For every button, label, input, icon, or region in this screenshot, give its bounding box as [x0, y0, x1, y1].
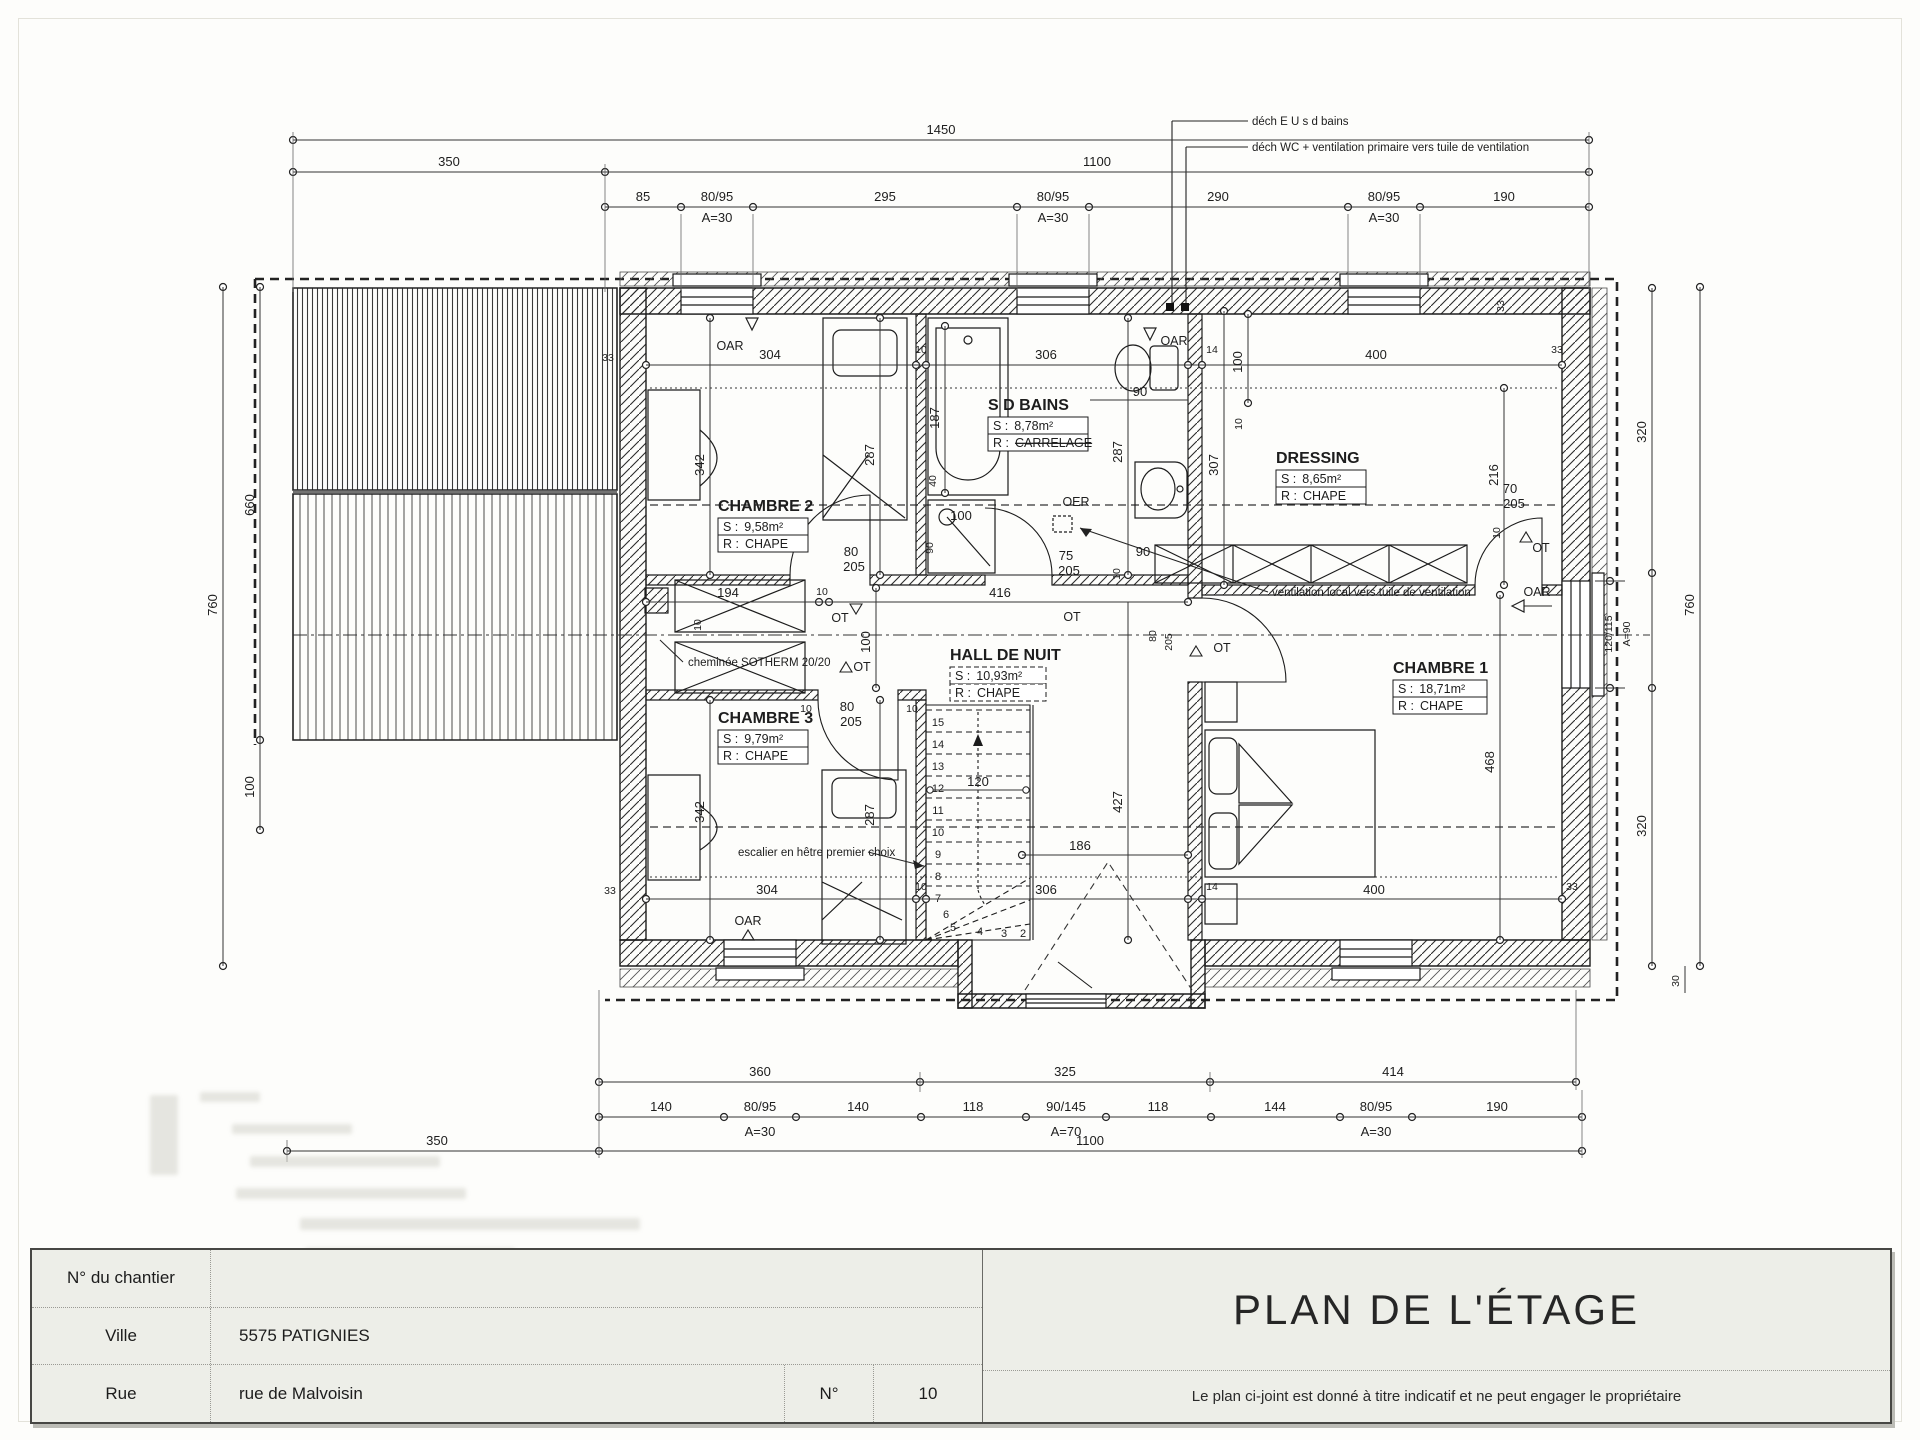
bed-ch1	[1205, 730, 1375, 877]
plan-title: PLAN DE L'ÉTAGE	[983, 1250, 1890, 1371]
dim: 10	[1491, 527, 1503, 539]
dim: 295	[874, 189, 896, 204]
dim: 10	[1233, 418, 1245, 430]
room-dressing: DRESSING S :8,65m² R :CHAPE	[1276, 450, 1366, 504]
dim: 205	[1503, 496, 1525, 511]
dim: 350	[426, 1133, 448, 1148]
dim: 80/95	[744, 1099, 777, 1114]
oar-right: OAR	[1512, 585, 1552, 612]
title-row-ville: Ville 5575 PATIGNIES	[32, 1308, 982, 1366]
dim: 187	[927, 407, 942, 429]
outer-walls	[620, 288, 1590, 1008]
dim: 10	[692, 619, 704, 631]
chantier-label: N° du chantier	[32, 1250, 211, 1307]
annotation-dech-eu: déch E U s d bains	[1252, 116, 1349, 128]
dim: 325	[1054, 1064, 1076, 1079]
dim: 100	[1230, 351, 1245, 373]
svg-text:OER: OER	[1062, 495, 1089, 509]
dim: A=30	[1361, 1124, 1392, 1139]
dim: A=30	[745, 1124, 776, 1139]
door-ch3	[818, 700, 898, 780]
svg-text:OT: OT	[1532, 541, 1550, 555]
dim: 10	[816, 586, 828, 598]
step-label: 3	[1001, 928, 1007, 940]
room-hall: HALL DE NUIT S :10,93m² R :CHAPE	[950, 647, 1061, 701]
ot-hall-west: OT	[831, 604, 862, 625]
step-label: 5	[950, 922, 956, 934]
dim: 90/145	[1046, 1099, 1086, 1114]
step-label: 10	[932, 827, 944, 839]
window-bottom-ch1	[1332, 940, 1420, 980]
dim: 427	[1110, 791, 1125, 813]
annotation-cheminee: cheminée SOTHERM 20/20	[688, 657, 831, 669]
step-label: 11	[932, 805, 943, 817]
window-top-dressing	[1340, 274, 1428, 314]
window-top-sdb	[1009, 274, 1097, 314]
dim: 400	[1363, 882, 1385, 897]
drawing-sheet: 15 14 13 12 11 10 9 8 7 6 5 4 3 2 120 CH…	[0, 0, 1920, 1440]
dim: 14	[1206, 344, 1218, 356]
ville-label: Ville	[32, 1308, 211, 1365]
svg-text:R :CHAPE: R :CHAPE	[955, 686, 1020, 700]
svg-text:S D BAINS: S D BAINS	[988, 397, 1069, 414]
title-row-rue: Rue rue de Malvoisin N° 10	[32, 1365, 982, 1422]
dim: 205	[1163, 633, 1175, 651]
dim-stair-width: 120	[967, 774, 989, 789]
dim: 205	[840, 714, 862, 729]
svg-text:S :9,58m²: S :9,58m²	[723, 520, 783, 534]
dim: A=30	[1038, 210, 1069, 225]
dim: 10	[915, 881, 927, 893]
svg-text:S :18,71m²: S :18,71m²	[1398, 682, 1465, 696]
dim: 190	[1493, 189, 1515, 204]
dim: 287	[862, 444, 877, 466]
dim: 760	[205, 594, 220, 616]
svg-text:DRESSING: DRESSING	[1276, 450, 1360, 467]
dim: 33	[604, 885, 616, 897]
dim: 194	[717, 585, 739, 600]
door-ch1	[1202, 598, 1286, 682]
ville-value: 5575 PATIGNIES	[211, 1326, 982, 1346]
dim: 80/95	[701, 189, 734, 204]
oar-bottom-left: OAR	[734, 914, 761, 940]
dim: 14	[1206, 881, 1218, 893]
dim: 140	[847, 1099, 869, 1114]
room-ch2: CHAMBRE 2 S :9,58m² R :CHAPE	[718, 498, 813, 552]
dim: 80/95	[1360, 1099, 1393, 1114]
dim: 306	[1035, 882, 1057, 897]
dim: 140	[650, 1099, 672, 1114]
dim: 186	[1069, 838, 1091, 853]
numero-label: N°	[784, 1365, 873, 1422]
dim: 33	[1551, 344, 1563, 356]
dim: 100	[950, 508, 972, 523]
dim: 205	[843, 559, 865, 574]
svg-text:CHAMBRE 1: CHAMBRE 1	[1393, 660, 1488, 677]
dim: 70	[1503, 481, 1517, 496]
dim: 1100	[1083, 154, 1111, 169]
door-swings	[790, 495, 1542, 988]
dim: 414	[1382, 1064, 1404, 1079]
dim: 468	[1482, 751, 1497, 773]
dim: 307	[1206, 454, 1221, 476]
step-label: 13	[932, 761, 944, 773]
step-label: 2	[1020, 928, 1026, 940]
dim: 304	[756, 882, 778, 897]
room-ch1: CHAMBRE 1 S :18,71m² R :CHAPE	[1393, 660, 1488, 714]
dim: 120/115	[1603, 615, 1615, 652]
dim: 100	[858, 631, 873, 653]
dim: 304	[759, 347, 781, 362]
svg-text:OT: OT	[853, 660, 871, 674]
title-block-right: PLAN DE L'ÉTAGE Le plan ci-joint est don…	[983, 1250, 1890, 1422]
dim: 90	[1136, 544, 1150, 559]
step-label: 4	[977, 926, 983, 938]
dim: 90	[1133, 384, 1147, 399]
dim: 30	[1670, 975, 1682, 987]
room-sdb: S D BAINS S :8,78m² R :CARRELAGE	[988, 397, 1092, 451]
dim: 144	[1264, 1099, 1286, 1114]
dim: 10	[800, 703, 812, 715]
dim: 400	[1365, 347, 1387, 362]
window-bottom-ch3	[716, 940, 804, 980]
ot-ch1: OT	[1190, 641, 1231, 656]
step-label: 6	[943, 909, 949, 921]
svg-text:OT: OT	[1213, 641, 1231, 655]
dim: 205	[1058, 563, 1080, 578]
dim: A=30	[1369, 210, 1400, 225]
dim: 190	[1486, 1099, 1508, 1114]
plan-disclaimer: Le plan ci-joint est donné à titre indic…	[983, 1371, 1890, 1422]
terrace	[293, 288, 617, 740]
dim: A=90	[1621, 621, 1633, 646]
dim: 100	[242, 776, 257, 798]
title-block: N° du chantier Ville 5575 PATIGNIES Rue …	[30, 1248, 1892, 1424]
svg-text:CHAMBRE 3: CHAMBRE 3	[718, 710, 813, 727]
dim: 350	[438, 154, 460, 169]
dim: 118	[1148, 1099, 1169, 1114]
dim: 33	[1495, 300, 1507, 312]
dim: A=30	[702, 210, 733, 225]
rue-label: Rue	[32, 1365, 211, 1422]
oar-top-right: OAR	[1144, 328, 1188, 348]
dim: 118	[963, 1099, 984, 1114]
svg-text:S :8,65m²: S :8,65m²	[1281, 472, 1341, 486]
svg-text:OT: OT	[831, 611, 849, 625]
dim: 760	[1682, 594, 1697, 616]
step-label: 9	[935, 849, 941, 861]
nightstand-ch1-a	[1205, 682, 1237, 722]
window-top-ch2	[673, 274, 761, 314]
door-entrance-leaf	[1058, 962, 1092, 988]
oar-top-left: OAR	[716, 318, 758, 353]
dim: 660	[242, 494, 257, 516]
svg-text:R :CARRELAGE: R :CARRELAGE	[993, 436, 1092, 450]
svg-text:OAR: OAR	[716, 339, 743, 353]
svg-text:R :CHAPE: R :CHAPE	[1398, 699, 1463, 713]
dim: 342	[692, 801, 707, 823]
svg-text:OAR: OAR	[734, 914, 761, 928]
dim: 287	[1110, 441, 1125, 463]
svg-text:OAR: OAR	[1160, 334, 1187, 348]
annotation-dech-wc: déch WC + ventilation primaire vers tuil…	[1252, 142, 1529, 154]
dim: 40	[927, 475, 939, 487]
svg-text:OT: OT	[1063, 610, 1081, 624]
dim: 33	[602, 352, 614, 364]
dim: 10	[1111, 568, 1123, 580]
dim: 1100	[1076, 1133, 1104, 1148]
svg-text:S :10,93m²: S :10,93m²	[955, 669, 1022, 683]
dim: 216	[1486, 464, 1501, 486]
dim: 342	[692, 454, 707, 476]
svg-text:R :CHAPE: R :CHAPE	[723, 537, 788, 551]
dim: 75	[1059, 548, 1073, 563]
step-label: 14	[932, 739, 944, 751]
dim: 320	[1634, 421, 1649, 443]
vl-vent-box	[1053, 516, 1072, 532]
eave-bands	[620, 272, 1607, 987]
washbasin	[1135, 462, 1187, 518]
dim: 80	[844, 544, 858, 559]
dim: 80	[840, 699, 854, 714]
desk-ch2	[648, 390, 717, 500]
svg-text:S :9,79m²: S :9,79m²	[723, 732, 783, 746]
svg-text:S :8,78m²: S :8,78m²	[993, 419, 1053, 433]
window-bay	[1026, 994, 1106, 1008]
dim: 306	[1035, 347, 1057, 362]
dim: 80/95	[1368, 189, 1401, 204]
floor-plan-drawing: 15 14 13 12 11 10 9 8 7 6 5 4 3 2 120 CH…	[0, 0, 1920, 1240]
svg-text:OAR: OAR	[1523, 585, 1550, 599]
dim: 80/95	[1037, 189, 1070, 204]
oer-label: OER	[1062, 495, 1089, 509]
step-label: 8	[935, 871, 941, 883]
svg-text:HALL DE NUIT: HALL DE NUIT	[950, 647, 1061, 664]
dim: 10	[906, 703, 918, 715]
ot-dressing: OT	[1520, 532, 1550, 555]
dim: 33	[1566, 881, 1578, 893]
svg-text:R :CHAPE: R :CHAPE	[723, 749, 788, 763]
annotation-vent-local: ventilation local vers tuile de ventilat…	[1272, 587, 1471, 599]
numero-value: 10	[873, 1365, 982, 1422]
dim: 80	[1147, 630, 1159, 642]
svg-text:R :CHAPE: R :CHAPE	[1281, 489, 1346, 503]
dim: 287	[862, 804, 877, 826]
dim: 85	[636, 189, 650, 204]
bed-ch2	[823, 318, 907, 520]
svg-text:CHAMBRE 2: CHAMBRE 2	[718, 498, 813, 515]
ot-hall-mid: OT	[1063, 610, 1081, 624]
dim: 1450	[927, 122, 956, 137]
dim: 320	[1634, 815, 1649, 837]
dim: 90	[924, 542, 936, 554]
title-block-left: N° du chantier Ville 5575 PATIGNIES Rue …	[32, 1250, 983, 1422]
dim: 416	[989, 585, 1011, 600]
dim: 10	[915, 344, 927, 356]
dim: 360	[749, 1064, 771, 1079]
dim: 290	[1207, 189, 1229, 204]
room-ch3: CHAMBRE 3 S :9,79m² R :CHAPE	[718, 710, 813, 764]
ot-hall-south: OT	[840, 660, 871, 674]
step-label: 15	[932, 717, 944, 729]
title-row-chantier: N° du chantier	[32, 1250, 982, 1308]
step-label: 12	[932, 783, 944, 795]
rue-value: rue de Malvoisin	[211, 1384, 784, 1404]
